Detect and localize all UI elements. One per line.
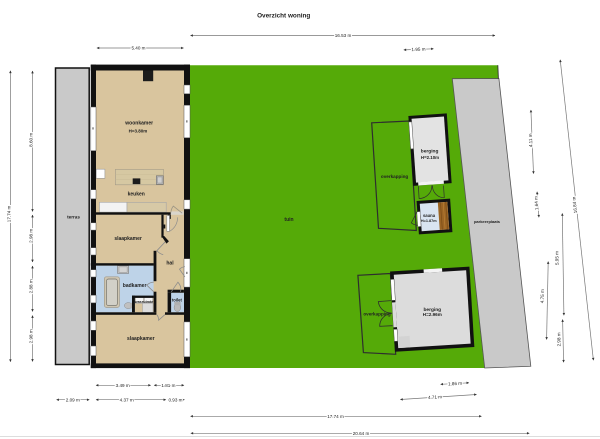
svg-text:H=2.96m: H=2.96m	[423, 312, 442, 317]
svg-text:1.81 m: 1.81 m	[161, 383, 175, 388]
svg-text:2.98 m: 2.98 m	[29, 329, 34, 343]
svg-text:0.93 m: 0.93 m	[168, 397, 182, 402]
svg-text:2.98 m: 2.98 m	[29, 229, 34, 243]
svg-text:slaapkamer: slaapkamer	[127, 336, 155, 342]
svg-text:4.75 m: 4.75 m	[540, 289, 545, 303]
svg-text:8.60 m: 8.60 m	[29, 133, 34, 147]
svg-text:2.88 m: 2.88 m	[29, 279, 34, 293]
svg-text:overkapping: overkapping	[381, 174, 409, 179]
svg-text:5.40 m: 5.40 m	[131, 46, 145, 51]
svg-text:16.53 m: 16.53 m	[335, 33, 352, 38]
svg-text:20.64 m: 20.64 m	[353, 431, 370, 436]
svg-text:keuken: keuken	[128, 191, 145, 197]
svg-text:3.49 m: 3.49 m	[116, 383, 130, 388]
svg-text:hal: hal	[166, 261, 174, 267]
svg-text:4.37 m: 4.37 m	[120, 397, 134, 402]
svg-text:2.98 m: 2.98 m	[556, 332, 561, 346]
svg-text:H=1.87m: H=1.87m	[421, 219, 437, 223]
svg-text:17.74 m: 17.74 m	[7, 205, 12, 222]
svg-text:5.95 m: 5.95 m	[554, 251, 559, 265]
svg-text:1.86 m: 1.86 m	[448, 381, 462, 387]
svg-text:H=3.80m: H=3.80m	[129, 129, 148, 134]
svg-text:2.09 m: 2.09 m	[66, 397, 80, 402]
svg-text:berging: berging	[421, 148, 439, 154]
svg-text:17.74 m: 17.74 m	[327, 414, 344, 419]
svg-text:slaapkamer: slaapkamer	[114, 236, 142, 242]
svg-text:parkeerplaats: parkeerplaats	[474, 219, 501, 224]
svg-text:sauna: sauna	[423, 213, 436, 218]
svg-text:1.64 m: 1.64 m	[533, 196, 539, 211]
svg-text:Overzicht woning: Overzicht woning	[257, 12, 310, 19]
svg-text:tuin: tuin	[284, 217, 293, 223]
svg-text:toilet: toilet	[172, 297, 183, 302]
svg-text:1.95 m: 1.95 m	[411, 47, 425, 53]
svg-text:H=2.10m: H=2.10m	[421, 155, 439, 160]
svg-text:terras: terras	[67, 215, 80, 220]
svg-text:badkamer: badkamer	[123, 283, 147, 289]
svg-text:4.71 m: 4.71 m	[428, 394, 443, 400]
svg-text:woonkamer: woonkamer	[124, 121, 153, 127]
svg-text:wasruimte: wasruimte	[134, 300, 154, 304]
svg-text:4.11 m: 4.11 m	[528, 133, 534, 147]
